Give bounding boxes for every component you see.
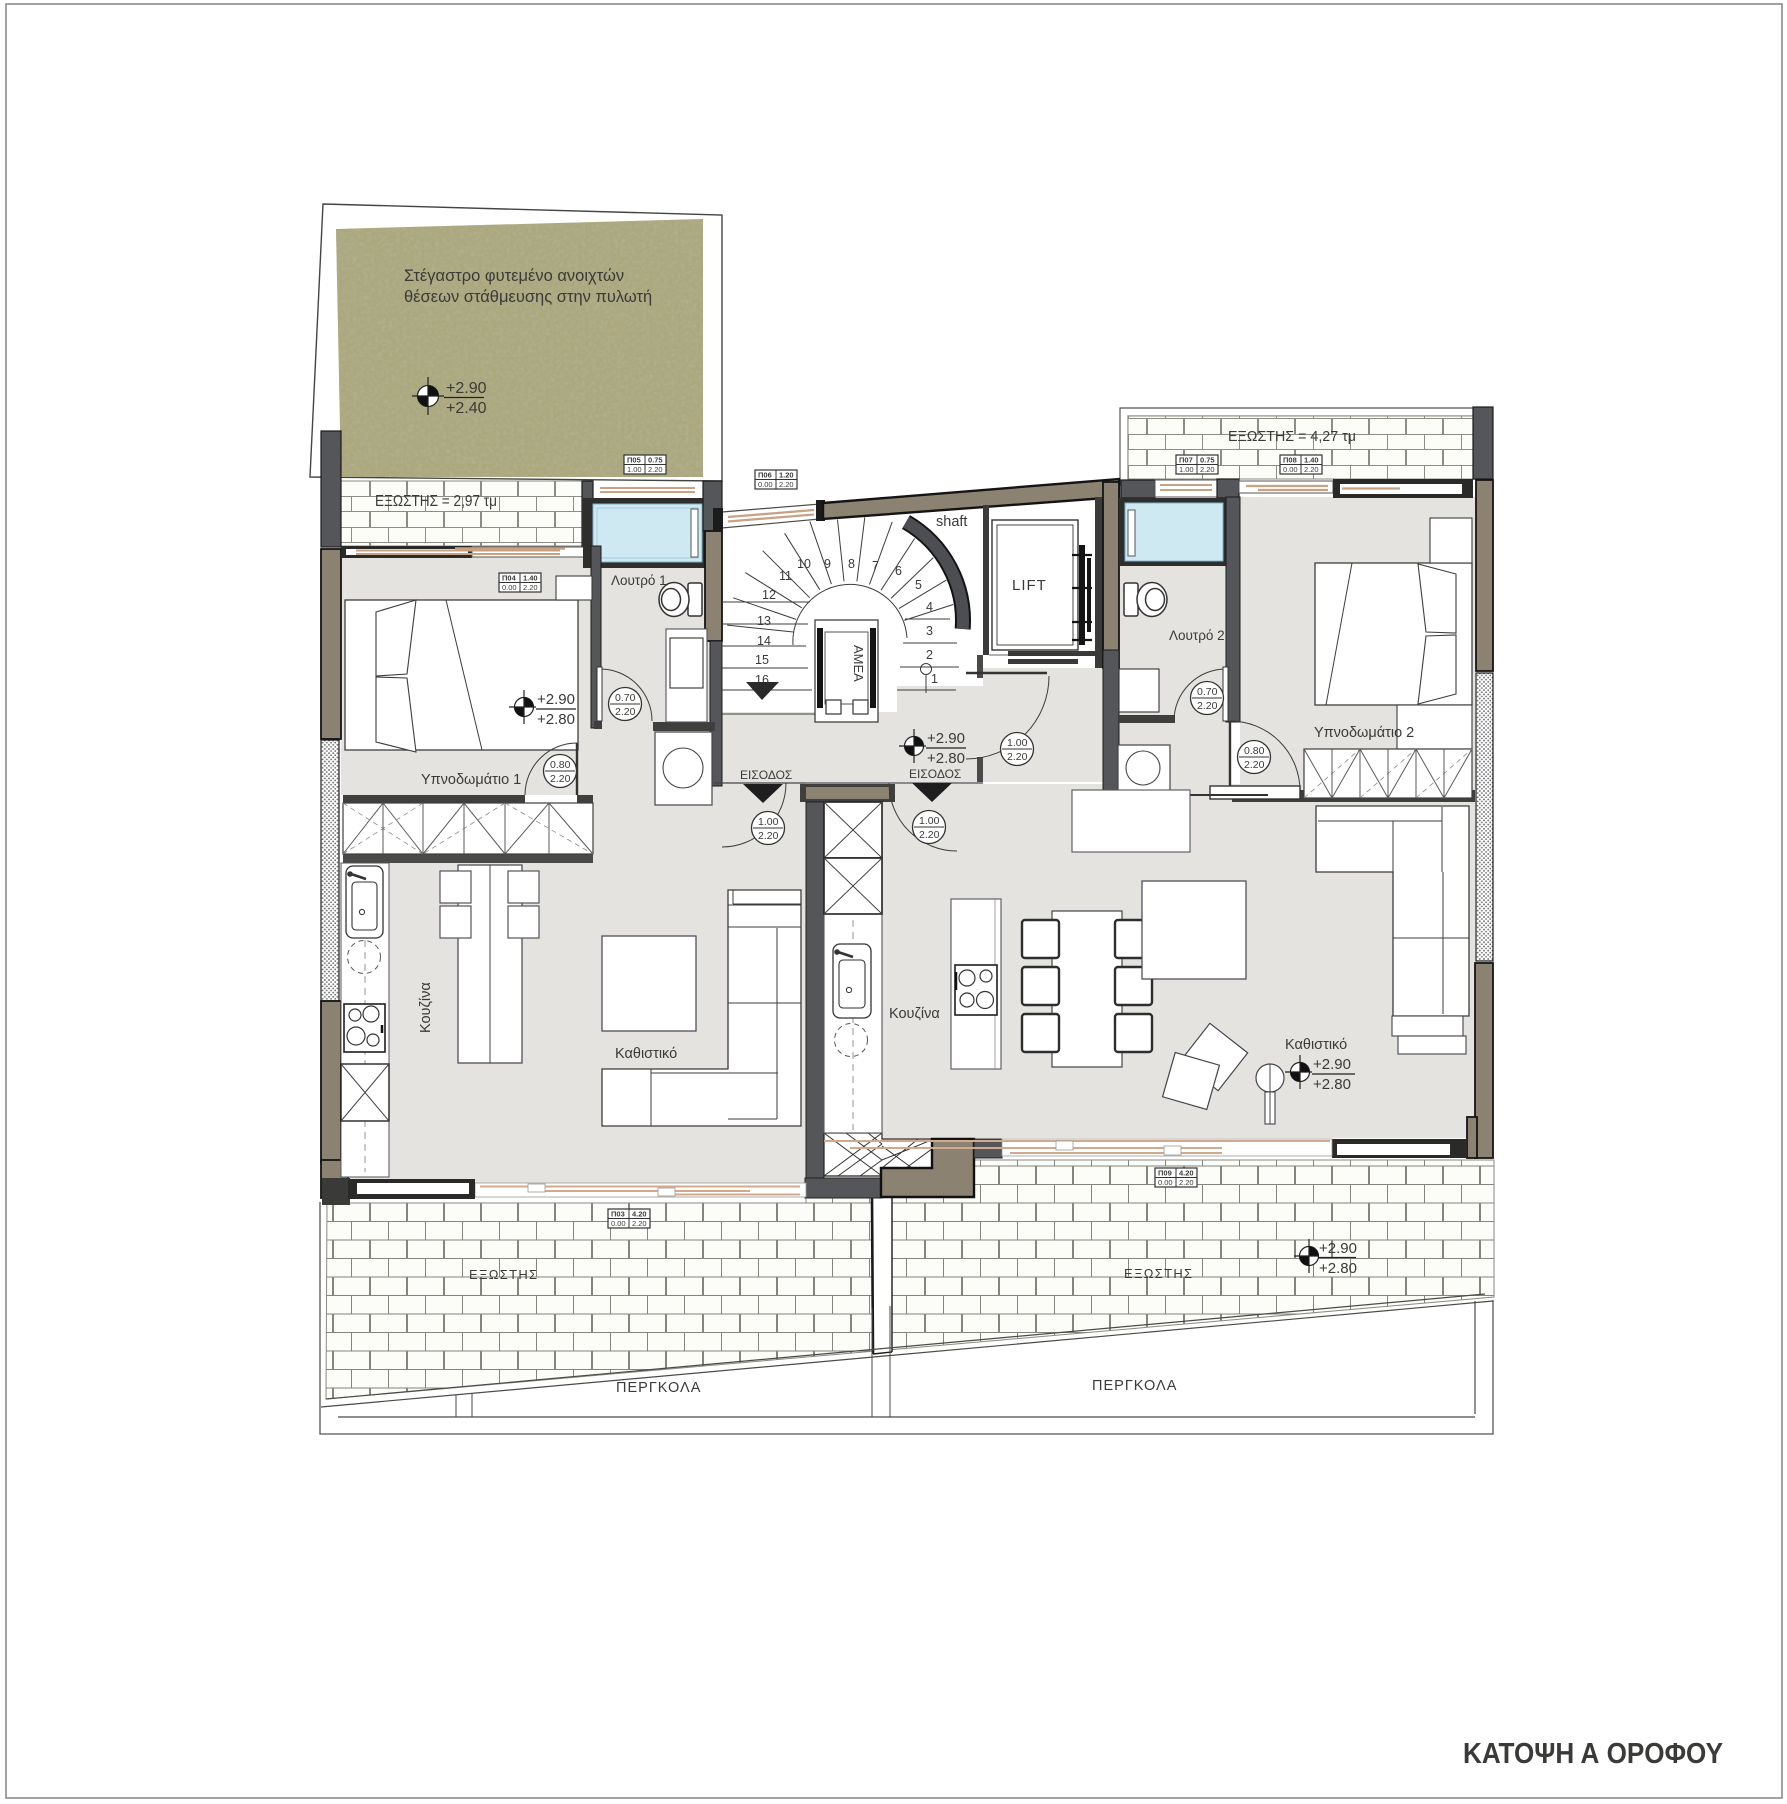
svg-text:14: 14 [757, 634, 771, 648]
svg-text:Π09: Π09 [1158, 1169, 1172, 1178]
svg-text:Π08: Π08 [1283, 456, 1297, 465]
svg-text:0.00: 0.00 [1158, 1178, 1173, 1187]
svg-text:Π05: Π05 [627, 456, 641, 465]
svg-text:2.20: 2.20 [1197, 700, 1218, 712]
svg-text:θέσεων στάθμευσης στην πυλωτή: θέσεων στάθμευσης στην πυλωτή [404, 288, 652, 306]
svg-text:4.20: 4.20 [632, 1210, 647, 1219]
svg-text:shaft: shaft [936, 514, 967, 530]
svg-text:2.20: 2.20 [758, 830, 779, 842]
svg-text:ΑΜΕΑ: ΑΜΕΑ [851, 645, 866, 682]
svg-text:+2.80: +2.80 [1313, 1076, 1351, 1093]
svg-text:6: 6 [895, 564, 902, 578]
svg-text:ΕΙΣΟΔΟΣ: ΕΙΣΟΔΟΣ [740, 768, 792, 782]
svg-text:Π07: Π07 [1179, 456, 1193, 465]
svg-text:0.70: 0.70 [1197, 686, 1218, 698]
svg-text:4: 4 [926, 600, 933, 614]
svg-text:2.20: 2.20 [632, 1219, 647, 1228]
svg-text:10: 10 [797, 557, 811, 571]
svg-text:+2.90: +2.90 [446, 380, 487, 397]
svg-text:2.20: 2.20 [919, 829, 940, 841]
svg-text:2.20: 2.20 [615, 706, 636, 718]
svg-text:ΕΙΣΟΔΟΣ: ΕΙΣΟΔΟΣ [909, 767, 961, 781]
svg-text:0.75: 0.75 [1200, 456, 1215, 465]
svg-text:7: 7 [872, 559, 879, 573]
svg-text:ΕΞΩΣΤΗΣ = 2,97 τμ: ΕΞΩΣΤΗΣ = 2,97 τμ [375, 493, 497, 510]
svg-text:Π04: Π04 [502, 574, 517, 583]
svg-text:2.20: 2.20 [648, 465, 663, 474]
svg-text:1: 1 [931, 672, 938, 686]
svg-text:Π06: Π06 [758, 471, 772, 480]
svg-text:ΕΞΩΣΤΗΣ = 4,27 τμ: ΕΞΩΣΤΗΣ = 4,27 τμ [1228, 428, 1356, 445]
svg-text:12: 12 [762, 588, 776, 602]
svg-text:13: 13 [757, 614, 771, 628]
svg-text:Καθιστικό: Καθιστικό [1285, 1037, 1347, 1053]
svg-text:2.20: 2.20 [1200, 465, 1215, 474]
svg-text:0.00: 0.00 [758, 480, 773, 489]
svg-text:Κουζίνα: Κουζίνα [889, 1006, 940, 1022]
svg-text:Π03: Π03 [611, 1210, 625, 1219]
svg-text:+2.90: +2.90 [927, 730, 965, 747]
svg-text:1.00: 1.00 [919, 815, 940, 827]
svg-text:ΠΕΡΓΚΟΛΑ: ΠΕΡΓΚΟΛΑ [1092, 1378, 1177, 1394]
svg-text:ΕΞΩΣΤΗΣ: ΕΞΩΣΤΗΣ [1124, 1266, 1193, 1281]
svg-text:1.00: 1.00 [627, 465, 642, 474]
svg-text:+2.80: +2.80 [537, 711, 575, 728]
svg-text:2.20: 2.20 [779, 480, 794, 489]
svg-text:+2.90: +2.90 [537, 691, 575, 708]
svg-text:1.20: 1.20 [779, 471, 794, 480]
svg-text:+2.90: +2.90 [1313, 1056, 1351, 1073]
svg-text:Στέγαστρο φυτεμένο ανοιχτών: Στέγαστρο φυτεμένο ανοιχτών [404, 267, 624, 285]
svg-text:+2.90: +2.90 [1319, 1240, 1357, 1257]
svg-text:9: 9 [824, 557, 831, 571]
svg-text:1.00: 1.00 [1007, 737, 1028, 749]
svg-text:2.20: 2.20 [1244, 759, 1265, 771]
svg-text:Υπνοδωμάτιο 2: Υπνοδωμάτιο 2 [1314, 725, 1414, 741]
svg-text:0.80: 0.80 [1244, 745, 1265, 757]
svg-text:2.20: 2.20 [550, 773, 571, 785]
svg-text:Κουζίνα: Κουζίνα [418, 982, 434, 1033]
svg-text:ΠΕΡΓΚΟΛΑ: ΠΕΡΓΚΟΛΑ [616, 1380, 701, 1396]
svg-text:0.75: 0.75 [648, 456, 663, 465]
svg-text:1.40: 1.40 [523, 574, 538, 583]
svg-text:0.70: 0.70 [615, 692, 636, 704]
svg-text:2.20: 2.20 [1304, 465, 1319, 474]
svg-text:4.20: 4.20 [1179, 1169, 1194, 1178]
svg-text:+2.80: +2.80 [1319, 1260, 1357, 1277]
svg-text:11: 11 [779, 569, 792, 583]
svg-text:5: 5 [915, 578, 922, 592]
svg-text:Καθιστικό: Καθιστικό [615, 1046, 677, 1062]
svg-text:8: 8 [848, 557, 855, 571]
svg-text:0.00: 0.00 [1283, 465, 1298, 474]
svg-text:2.20: 2.20 [1007, 751, 1028, 763]
svg-text:1.00: 1.00 [758, 816, 779, 828]
svg-text:1.40: 1.40 [1304, 456, 1319, 465]
svg-text:15: 15 [755, 653, 769, 667]
svg-text:ΚΑΤΟΨΗ Α ΟΡΟΦΟΥ: ΚΑΤΟΨΗ Α ΟΡΟΦΟΥ [1463, 1738, 1723, 1770]
svg-text:0.00: 0.00 [611, 1219, 626, 1228]
svg-text:Υπνοδωμάτιο 1: Υπνοδωμάτιο 1 [421, 772, 521, 788]
svg-text:2.20: 2.20 [523, 583, 538, 592]
svg-text:2.20: 2.20 [1179, 1178, 1194, 1187]
svg-text:3: 3 [926, 624, 933, 638]
svg-text:0.80: 0.80 [550, 759, 571, 771]
svg-text:LIFT: LIFT [1012, 577, 1047, 594]
svg-text:ΕΞΩΣΤΗΣ: ΕΞΩΣΤΗΣ [469, 1267, 538, 1282]
svg-text:1.00: 1.00 [1179, 465, 1194, 474]
svg-text:2: 2 [926, 648, 933, 662]
svg-text:0.00: 0.00 [502, 583, 517, 592]
svg-text:Λουτρό 2: Λουτρό 2 [1169, 628, 1225, 643]
svg-text:Λουτρό 1: Λουτρό 1 [611, 573, 667, 588]
svg-text:+2.40: +2.40 [446, 400, 487, 417]
svg-text:+2.80: +2.80 [927, 750, 965, 767]
